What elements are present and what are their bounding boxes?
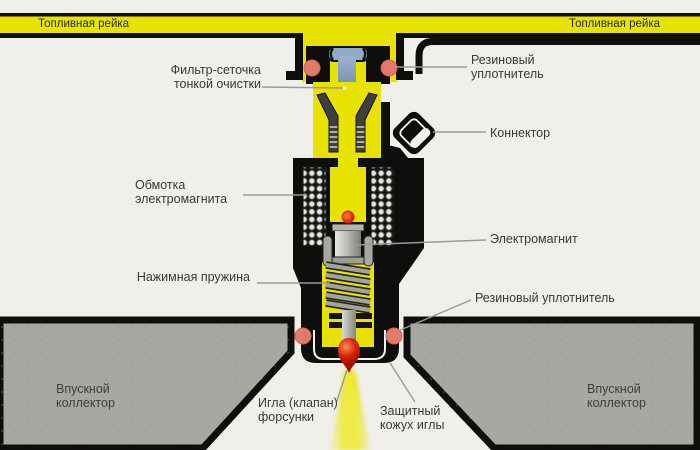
fuel-rail-top-border bbox=[0, 13, 700, 17]
label-rubber-seal-bottom: Резиновый уплотнитель bbox=[475, 291, 615, 305]
leader-filter-end-dot bbox=[343, 86, 347, 90]
label-intake-manifold-right: Впускной коллектор bbox=[587, 382, 646, 410]
rail-socket-foot-right bbox=[396, 71, 413, 80]
fuel-rail-bottom-border-right bbox=[402, 33, 700, 38]
leader-filter bbox=[262, 87, 344, 88]
label-connector: Коннектор bbox=[490, 126, 550, 140]
solenoid-winding-right bbox=[371, 167, 394, 246]
rail-socket-foot-left bbox=[286, 71, 303, 80]
solenoid-core-flange-top bbox=[332, 224, 364, 231]
fuel-rail-label-left: Топливная рейка bbox=[38, 18, 129, 30]
channel-notch-right bbox=[358, 158, 366, 167]
fuel-injector-diagram: Топливная рейка Топливная рейка Фильтр-с… bbox=[0, 0, 700, 450]
fuel-rail-bottom-border-left bbox=[0, 33, 296, 38]
label-needle-valve: Игла (клапан) форсунки bbox=[258, 396, 338, 424]
label-rubber-seal-top: Резиновый уплотнитель bbox=[471, 53, 544, 81]
valve-ball bbox=[342, 211, 355, 224]
label-intake-manifold-left: Впускной коллектор bbox=[56, 382, 115, 410]
rubber-seal-top-left bbox=[304, 60, 320, 76]
label-pressure-spring: Нажимная пружина bbox=[110, 270, 250, 284]
channel-notch-left bbox=[330, 158, 338, 167]
rubber-seal-top-right bbox=[381, 60, 397, 76]
rubber-seal-bottom-left bbox=[295, 328, 311, 344]
core-guide-right bbox=[364, 236, 373, 266]
solenoid-winding-left bbox=[303, 167, 326, 246]
fuel-rail-label-right: Топливная рейка bbox=[540, 18, 660, 30]
solenoid-core bbox=[335, 231, 361, 257]
label-electromagnet: Электромагнит bbox=[490, 232, 578, 246]
label-needle-sheath: Защитный кожух иглы bbox=[380, 404, 444, 432]
label-fine-filter: Фильтр-сеточка тонкой очистки bbox=[140, 63, 261, 91]
label-solenoid-winding: Обмотка электромагнита bbox=[135, 178, 227, 206]
